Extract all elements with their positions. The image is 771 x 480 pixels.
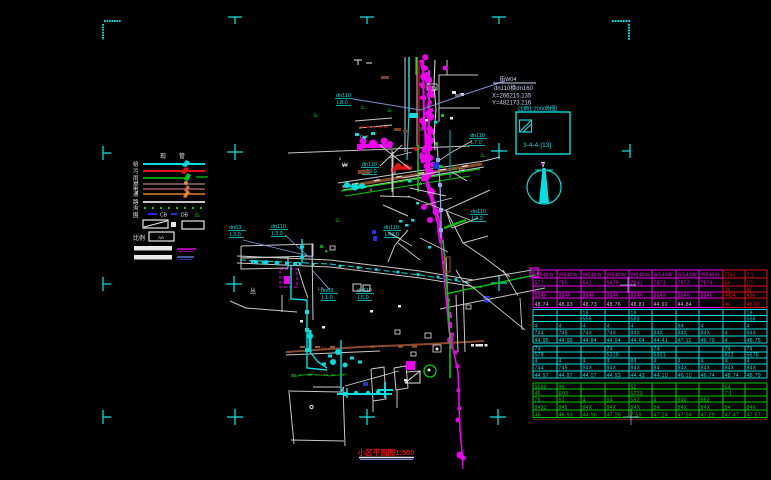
svg-text:x: x — [339, 156, 342, 161]
svg-text:48.75: 48.75 — [747, 338, 761, 344]
svg-text:么: 么 — [194, 212, 200, 219]
svg-text:982: 982 — [701, 397, 710, 403]
svg-text:744: 744 — [535, 331, 544, 337]
svg-text:4: 4 — [559, 359, 562, 365]
svg-text:8492: 8492 — [535, 405, 547, 411]
svg-text:84X: 84X — [654, 331, 664, 337]
svg-text:7841: 7841 — [631, 281, 643, 287]
svg-text:么: 么 — [452, 166, 457, 172]
svg-text:744: 744 — [535, 366, 544, 372]
svg-text:52: 52 — [631, 384, 637, 390]
svg-text:48.03: 48.03 — [747, 302, 760, 308]
svg-text:45: 45 — [535, 391, 541, 397]
svg-text:46.79: 46.79 — [701, 338, 715, 344]
svg-text:么: 么 — [387, 108, 392, 114]
svg-text:4: 4 — [583, 397, 586, 403]
svg-text:么: 么 — [360, 105, 365, 111]
svg-text:845: 845 — [559, 405, 568, 411]
svg-text:894#: 894# — [607, 293, 619, 299]
svg-text:么: 么 — [480, 153, 485, 159]
svg-text:47.11: 47.11 — [678, 338, 692, 344]
svg-text:W54#W: W54#W — [583, 273, 602, 279]
svg-text:W54#W: W54#W — [559, 273, 578, 279]
svg-text:84X: 84X — [747, 405, 757, 411]
svg-text:44.84: 44.84 — [583, 338, 597, 344]
svg-text:X=266215.135: X=266215.135 — [492, 94, 532, 100]
svg-text:4: 4 — [747, 324, 750, 330]
svg-text:AA: AA — [158, 235, 164, 240]
svg-text:46.10: 46.10 — [678, 373, 692, 379]
svg-text:给: 给 — [133, 160, 139, 168]
svg-text:雨: 雨 — [133, 175, 139, 182]
svg-text:44.07: 44.07 — [583, 373, 597, 379]
svg-text:84X: 84X — [631, 331, 641, 337]
svg-text:比例: 比例 — [133, 234, 145, 242]
svg-text:W54#W: W54#W — [607, 273, 626, 279]
svg-text:W54#W: W54#W — [701, 273, 720, 279]
svg-text:沟: 沟 — [133, 204, 139, 212]
svg-text:4: 4 — [583, 359, 586, 365]
svg-text:47.47: 47.47 — [725, 412, 739, 418]
svg-text:小区平面图1:500: 小区平面图1:500 — [358, 447, 415, 457]
svg-text:745: 745 — [559, 331, 568, 337]
svg-text:99: 99 — [559, 384, 565, 390]
svg-text:4: 4 — [678, 359, 681, 365]
svg-text:48.79: 48.79 — [747, 373, 761, 379]
svg-text:48.93: 48.93 — [559, 302, 573, 308]
svg-text:4: 4 — [701, 324, 704, 330]
svg-text:577: 577 — [535, 281, 544, 287]
svg-text:84X: 84X — [725, 366, 735, 372]
svg-text:7762: 7762 — [725, 273, 736, 279]
svg-text:44.95: 44.95 — [559, 338, 573, 344]
svg-text:84X: 84X — [701, 331, 711, 337]
svg-text:47.67: 47.67 — [747, 412, 761, 418]
svg-text:61: 61 — [559, 397, 565, 403]
svg-text:5479: 5479 — [607, 281, 619, 287]
svg-text:84X: 84X — [747, 366, 757, 372]
svg-text:84X: 84X — [631, 405, 641, 411]
svg-text:84X: 84X — [701, 366, 711, 372]
svg-text:894#: 894# — [701, 293, 713, 299]
svg-text:894#: 894# — [583, 293, 595, 299]
svg-text:54: 54 — [725, 384, 731, 390]
svg-text:DB: DB — [181, 213, 189, 219]
svg-text:(7): (7) — [747, 281, 753, 287]
svg-text:通: 通 — [133, 190, 139, 198]
svg-text:4: 4 — [654, 359, 657, 365]
svg-text:44.93: 44.93 — [607, 373, 621, 379]
svg-text:84X: 84X — [678, 405, 688, 411]
svg-text:785: 785 — [559, 281, 568, 287]
svg-text:7874: 7874 — [701, 281, 713, 287]
svg-text:dn110换dn160: dn110换dn160 — [494, 84, 534, 92]
svg-text:A: A — [419, 181, 422, 186]
svg-text:84X: 84X — [678, 366, 688, 372]
svg-text:₩: ₩ — [342, 163, 348, 169]
svg-text:4: 4 — [631, 324, 634, 330]
svg-text:44.96: 44.96 — [583, 412, 597, 418]
svg-text:84X: 84X — [607, 366, 617, 372]
svg-text:48.81: 48.81 — [631, 302, 645, 308]
svg-text:84X: 84X — [701, 405, 711, 411]
svg-text:64: 64 — [607, 397, 613, 403]
svg-text:44.41: 44.41 — [654, 338, 668, 344]
svg-text:44.95: 44.95 — [535, 338, 549, 344]
svg-text:44.10: 44.10 — [654, 373, 668, 379]
svg-text:4: 4 — [535, 324, 538, 330]
svg-text:丛: 丛 — [250, 287, 256, 295]
svg-text:4: 4 — [535, 359, 538, 365]
svg-text:围: 围 — [133, 212, 139, 219]
svg-text:84X: 84X — [607, 405, 617, 411]
svg-text:48.73: 48.73 — [583, 302, 597, 308]
svg-text:48.74: 48.74 — [535, 302, 549, 308]
svg-text:9099: 9099 — [535, 384, 547, 390]
svg-text:44.84: 44.84 — [678, 302, 692, 308]
svg-text:4: 4 — [607, 324, 610, 330]
svg-text:5223: 5223 — [631, 391, 643, 397]
svg-text:L#: L# — [318, 286, 324, 291]
svg-text:894#: 894# — [535, 293, 547, 299]
svg-text:44.92: 44.92 — [654, 302, 668, 308]
svg-text:47.29: 47.29 — [701, 412, 715, 418]
svg-text:46: 46 — [535, 412, 541, 418]
svg-text:84: 84 — [678, 324, 684, 330]
svg-text:894#: 894# — [559, 293, 571, 299]
svg-text:7:1: 7:1 — [725, 391, 733, 397]
svg-text:4: 4 — [725, 359, 728, 365]
svg-text:44.97: 44.97 — [559, 373, 573, 379]
svg-text:84X: 84X — [631, 366, 641, 372]
svg-text:4: 4 — [747, 359, 750, 365]
svg-text:84X: 84X — [583, 366, 593, 372]
svg-text:592: 592 — [631, 397, 640, 403]
svg-text:74X: 74X — [607, 331, 617, 337]
svg-text:路: 路 — [133, 198, 139, 206]
svg-text:894#: 894# — [654, 293, 666, 299]
svg-text:W54#W: W54#W — [535, 273, 554, 279]
svg-text:4: 4 — [654, 397, 657, 403]
svg-text:84: 84 — [654, 366, 660, 372]
svg-text:管: 管 — [179, 152, 185, 160]
svg-text:E03: E03 — [559, 391, 569, 397]
svg-text:4494: 4494 — [725, 293, 736, 299]
svg-text:84: 84 — [725, 405, 731, 411]
svg-text:7#2: 7#2 — [430, 343, 437, 348]
svg-text:542: 542 — [583, 281, 592, 287]
svg-text:4: 4 — [725, 338, 728, 344]
svg-text:4: 4 — [583, 324, 586, 330]
svg-text:4: 4 — [725, 331, 728, 337]
svg-text:894#: 894# — [631, 293, 643, 299]
svg-text:84: 84 — [654, 405, 660, 411]
svg-text:48.76: 48.76 — [607, 302, 621, 308]
svg-text:494: 494 — [747, 293, 756, 299]
svg-text:49: 49 — [725, 302, 731, 308]
svg-text:44.97: 44.97 — [535, 373, 549, 379]
svg-text:84: 84 — [631, 359, 637, 365]
svg-text:47.24: 47.24 — [654, 412, 668, 418]
svg-text:894#: 894# — [678, 293, 690, 299]
svg-text:84X: 84X — [678, 331, 688, 337]
svg-text:cw: cw — [459, 167, 465, 172]
svg-text:4: 4 — [701, 359, 704, 365]
svg-text:W54#W: W54#W — [654, 273, 673, 279]
svg-text:么: 么 — [313, 113, 318, 119]
svg-text:84X: 84X — [747, 331, 757, 337]
svg-text:940: 940 — [678, 397, 687, 403]
svg-text:46.74: 46.74 — [701, 373, 715, 379]
svg-text:74X: 74X — [583, 331, 593, 337]
svg-text:54: 54 — [725, 281, 731, 287]
svg-text:污: 污 — [133, 167, 139, 175]
svg-text:W54#W: W54#W — [631, 273, 650, 279]
svg-text:47.26: 47.26 — [607, 412, 621, 418]
svg-text:4: 4 — [607, 359, 610, 365]
svg-text:街W04: 街W04 — [500, 75, 517, 83]
svg-text:么: 么 — [335, 218, 340, 224]
svg-text:7871: 7871 — [654, 281, 666, 287]
svg-text:7:1: 7:1 — [747, 273, 754, 279]
svg-text:84X: 84X — [583, 405, 593, 411]
svg-text:现: 现 — [160, 153, 166, 160]
svg-text:44.43: 44.43 — [631, 373, 645, 379]
svg-text:556: 556 — [747, 317, 756, 323]
svg-text:44.94: 44.94 — [607, 338, 621, 344]
svg-text:7872: 7872 — [678, 281, 690, 287]
svg-text:745: 745 — [559, 366, 568, 372]
svg-text:44.64: 44.64 — [631, 338, 645, 344]
svg-text:CB: CB — [160, 213, 168, 219]
svg-text:W54#W: W54#W — [678, 273, 697, 279]
svg-text:1#1: 1#1 — [320, 345, 327, 350]
svg-text:76: 76 — [535, 397, 541, 403]
svg-text:47.34: 47.34 — [678, 412, 692, 418]
svg-text:583: 583 — [631, 317, 640, 323]
svg-text:556: 556 — [583, 317, 592, 323]
svg-text:4: 4 — [559, 324, 562, 330]
svg-text:48.74: 48.74 — [725, 373, 739, 379]
svg-text:46.93: 46.93 — [559, 412, 573, 418]
svg-text:3-4-4-[13]: 3-4-4-[13] — [523, 142, 551, 149]
